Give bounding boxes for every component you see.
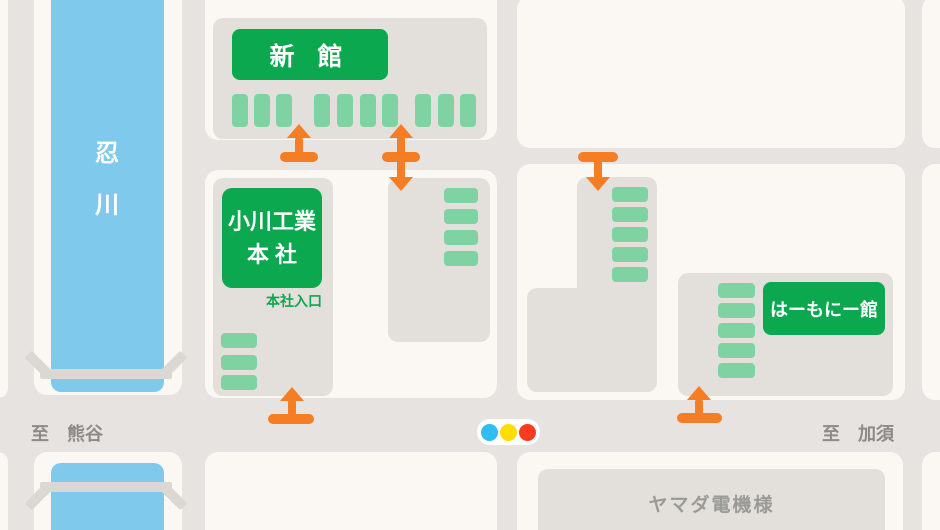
parking-stripe — [444, 230, 478, 245]
parking-stripe — [612, 267, 648, 282]
arrow-head-down — [389, 177, 413, 191]
arrow-stem — [288, 399, 296, 416]
parking-stripe — [460, 94, 476, 127]
parking-stripe — [438, 94, 454, 127]
parking-stripe — [221, 375, 257, 390]
block-west-sliver-north — [0, 0, 8, 398]
parking-stripe — [612, 227, 648, 242]
parking-stripe — [718, 343, 755, 358]
parking-stripe — [718, 323, 755, 338]
parking-stripe — [612, 207, 648, 222]
parking-stripe — [444, 251, 478, 266]
arrow-head-up — [287, 124, 311, 138]
yamada-lot: ヤマダ電機様 — [538, 469, 885, 530]
parking-stripe — [232, 94, 248, 127]
shinkan-label: 新 館 — [232, 29, 388, 80]
parking-stripe — [382, 94, 398, 127]
block-east-sliver-mid — [922, 164, 940, 400]
parking-stripe — [276, 94, 292, 127]
parking-stripe — [415, 94, 431, 127]
parking-stripe — [612, 187, 648, 202]
arrow-head-up — [687, 386, 711, 400]
parking-stripe — [254, 94, 270, 127]
traffic-light-yellow-dot — [500, 424, 517, 441]
honsha-label-line2: 本 社 — [247, 238, 297, 271]
parking-stripe — [221, 355, 257, 370]
road-label-west: 至 熊谷 — [31, 420, 103, 446]
harmony-label: はーもにー館 — [763, 282, 885, 335]
traffic-light-red-dot — [519, 424, 536, 441]
parking-stripe — [444, 209, 478, 224]
block-northeast — [517, 0, 905, 148]
parking-stripe — [718, 283, 755, 298]
east-l-lot-base — [527, 288, 657, 392]
arrow-stem — [295, 137, 303, 159]
parking-stripe — [718, 303, 755, 318]
block-east-sliver-south — [922, 452, 940, 530]
parking-stripe — [360, 94, 376, 127]
traffic-light-blue-dot — [481, 424, 498, 441]
parking-stripe — [718, 363, 755, 378]
block-east-sliver-north — [922, 0, 940, 148]
river-name-char-2: 川 — [92, 191, 122, 221]
honsha-label-line1: 小川工業 — [228, 205, 316, 238]
arrow-head-up — [389, 124, 413, 138]
arrow-stem — [397, 136, 405, 180]
river-name-char-1: 忍 — [92, 139, 122, 169]
parking-stripe — [444, 188, 478, 203]
river-south-segment — [51, 463, 164, 530]
bridge-deck — [40, 369, 172, 379]
arrow-stem — [695, 399, 703, 415]
parking-stripe — [221, 333, 257, 348]
bridge-deck — [40, 482, 172, 492]
honsha-entrance-note: 本社入口 — [240, 291, 322, 311]
access-map: 忍 川 ヤマダ電機様 新 — [0, 0, 940, 530]
block-southwest — [205, 452, 497, 530]
parking-stripe — [612, 247, 648, 262]
block-west-sliver-south — [0, 452, 8, 530]
arrow-head-up — [280, 387, 304, 401]
parking-stripe — [337, 94, 353, 127]
road-label-east: 至 加須 — [822, 420, 894, 446]
traffic-light-icon — [477, 419, 540, 445]
parking-stripe — [314, 94, 330, 127]
yamada-label: ヤマダ電機様 — [538, 490, 885, 517]
honsha-label: 小川工業 本 社 — [222, 188, 322, 288]
arrow-head-down — [586, 177, 610, 191]
